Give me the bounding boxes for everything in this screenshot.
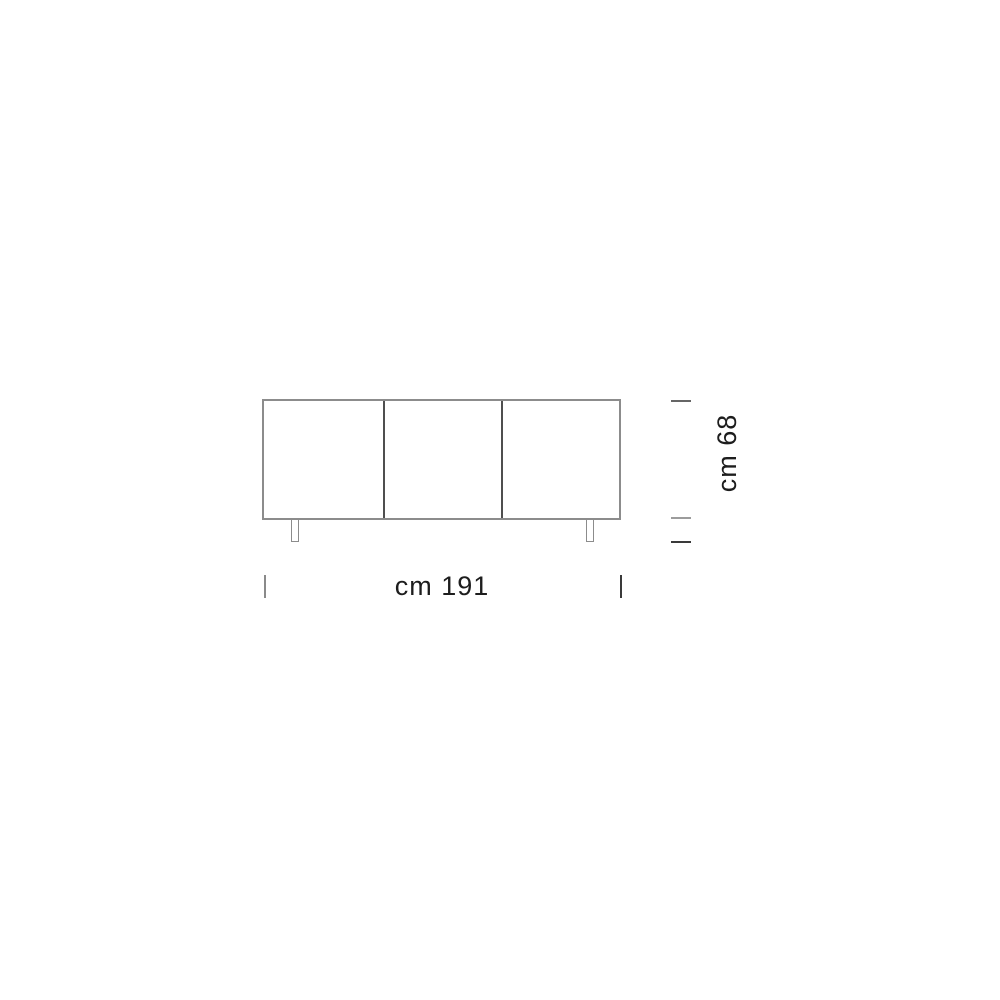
sideboard-outline (262, 399, 621, 520)
width-dimension-label: cm 191 (342, 572, 542, 600)
sideboard-leg-right (586, 520, 594, 542)
height-dimension-tick-body-bottom (671, 517, 691, 519)
height-dimension-tick-leg-bottom (671, 541, 691, 543)
diagram-canvas: cm 68 cm 191 (0, 0, 1000, 1000)
width-dimension-tick-right (620, 575, 622, 598)
height-dimension-tick-top (671, 400, 691, 402)
width-dimension-tick-left (264, 575, 266, 598)
height-dimension-label: cm 68 (713, 393, 741, 513)
sideboard-leg-left (291, 520, 299, 542)
door-divider-right (501, 401, 503, 518)
door-divider-left (383, 401, 385, 518)
